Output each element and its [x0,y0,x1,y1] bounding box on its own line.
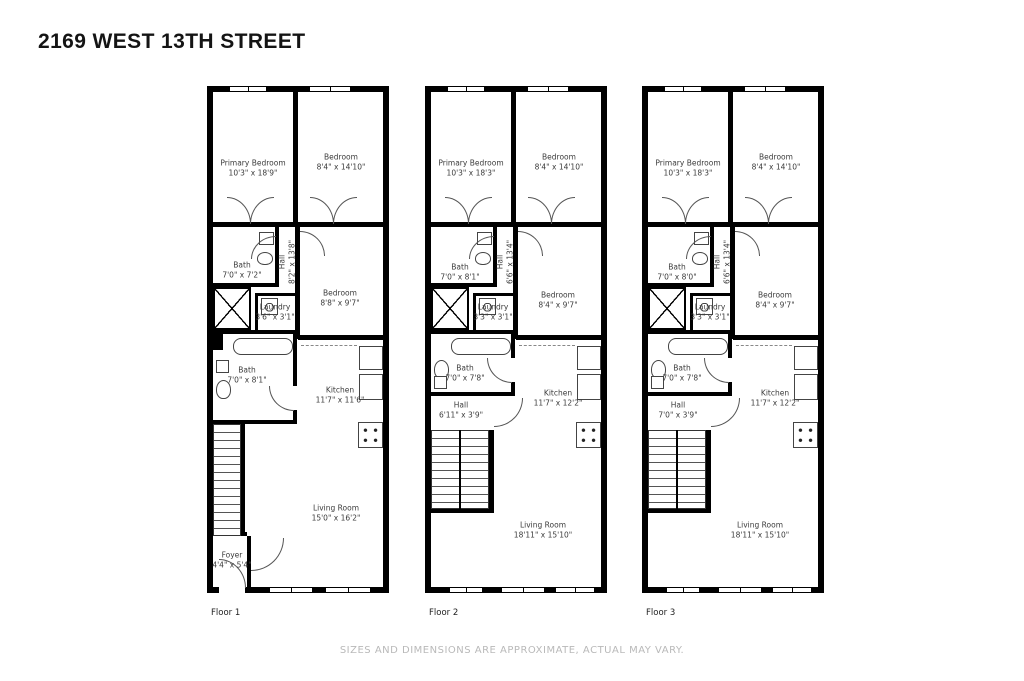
window-marker [527,86,569,92]
room-dims: 10'3" x 18'3" [438,168,503,178]
wall [431,509,494,513]
room-dims: 6'6" x 13'4" [722,240,732,284]
wall [255,293,299,296]
room-dims: 10'3" x 18'3" [655,168,720,178]
kitchen-sink-icon [794,346,818,370]
room-label-kitchen: Kitchen 11'7" x 11'6" [316,385,365,405]
room-name: Bath [440,262,479,272]
room-dims: 6'11" x 3'9" [439,410,483,420]
floorplan-page: 2169 WEST 13TH STREET [0,0,1024,681]
wall [648,392,732,396]
staircase [213,424,241,536]
room-label-hall-upper: Hall 6'6" x 13'4" [495,240,515,284]
room-dims: 8'4" x 14'10" [752,162,801,172]
disclaimer-text: SIZES AND DIMENSIONS ARE APPROXIMATE, AC… [0,645,1024,656]
shower-icon [648,287,686,330]
room-label-laundry: Laundry 3'3" x 3'1" [690,302,729,322]
window-marker [555,587,595,593]
room-name: Living Room [312,503,361,513]
room-name: Bedroom [755,290,794,300]
window-marker [718,587,762,593]
room-dims: 11'7" x 12'2" [534,398,583,408]
wall [728,92,733,225]
room-label-kitchen: Kitchen 11'7" x 12'2" [534,388,583,408]
floor-1-label: Floor 1 [211,608,240,618]
room-label-bedroom-top: Bedroom 8'4" x 14'10" [535,152,584,172]
room-dims: 3'3" x 3'1" [473,312,512,322]
floor-2-plan: Primary Bedroom 10'3" x 18'3" Bedroom 8'… [425,86,607,593]
room-label-bath-lower: Bath 7'0" x 7'8" [445,363,484,383]
room-name: Bath [222,260,261,270]
room-name: Hall [712,240,722,284]
room-label-bedroom-top: Bedroom 8'4" x 14'10" [317,152,366,172]
stove-icon [358,422,383,448]
cabinet-dash-line [519,345,575,346]
room-label-hall-upper: Hall 8'2" x 13'8" [277,240,297,284]
room-dims: 8'4" x 9'7" [538,300,577,310]
stair-divider [676,430,678,509]
kitchen-sink-icon [577,346,601,370]
room-name: Hall [439,400,483,410]
shower-icon [213,287,251,330]
room-dims: 10'3" x 18'9" [220,168,285,178]
room-dims: 7'0" x 7'8" [662,373,701,383]
wall [293,92,298,225]
wall [516,335,601,340]
cabinet-dash-line [736,345,792,346]
chimney-block [213,334,223,350]
room-label-hall-lower: Hall 7'0" x 3'9" [658,400,697,420]
window-marker [501,587,545,593]
wall [511,92,516,225]
room-name: Bath [445,363,484,373]
window-marker [666,587,700,593]
room-dims: 18'11" x 15'10" [514,530,572,540]
bathtub-icon [451,338,511,355]
window-marker [664,86,702,92]
room-name: Foyer [212,550,251,560]
room-name: Primary Bedroom [220,158,285,168]
room-label-primary-bedroom: Primary Bedroom 10'3" x 18'9" [220,158,285,178]
room-name: Bedroom [538,290,577,300]
room-dims: 8'4" x 14'10" [535,162,584,172]
room-label-bath-upper: Bath 7'0" x 8'1" [440,262,479,282]
room-dims: 6'6" x 13'4" [505,240,515,284]
room-label-living-room: Living Room 15'0" x 16'2" [312,503,361,523]
window-marker [744,86,786,92]
room-label-living-room: Living Room 18'11" x 15'10" [731,520,789,540]
room-dims: 7'0" x 7'2" [222,270,261,280]
wall [733,335,818,340]
room-name: Primary Bedroom [438,158,503,168]
room-name: Bath [662,363,701,373]
room-label-hall-upper: Hall 6'6" x 13'4" [712,240,732,284]
wall [473,293,517,296]
room-label-laundry: Laundry 3'3" x 3'1" [473,302,512,322]
wall [431,330,517,334]
room-label-foyer: Foyer 4'4" x 5'4" [212,550,251,570]
room-dims: 8'4" x 14'10" [317,162,366,172]
kitchen-sink-icon [359,346,383,370]
wall [431,392,515,396]
room-name: Bedroom [535,152,584,162]
floor-2-label: Floor 2 [429,608,458,618]
shower-icon [431,287,469,330]
room-dims: 7'0" x 3'9" [658,410,697,420]
room-label-living-room: Living Room 18'11" x 15'10" [514,520,572,540]
room-dims: 11'7" x 11'6" [316,395,365,405]
window-marker [772,587,812,593]
room-dims: 8'8" x 9'7" [320,298,359,308]
wall [690,293,734,296]
page-title: 2169 WEST 13TH STREET [38,30,305,54]
room-name: Hall [658,400,697,410]
cabinet-dash-line [301,345,357,346]
room-name: Bedroom [317,152,366,162]
room-dims: 3'6" x 3'1" [255,312,294,322]
window-marker [309,86,351,92]
room-dims: 18'11" x 15'10" [731,530,789,540]
room-label-bath-upper: Bath 7'0" x 7'2" [222,260,261,280]
bathtub-icon [668,338,728,355]
room-name: Kitchen [751,388,800,398]
room-name: Bath [227,365,266,375]
room-name: Hall [277,240,287,284]
room-label-bedroom-mid: Bedroom 8'4" x 9'7" [755,290,794,310]
room-label-bedroom-top: Bedroom 8'4" x 14'10" [752,152,801,172]
room-name: Kitchen [534,388,583,398]
room-name: Bath [657,262,696,272]
room-name: Laundry [255,302,294,312]
room-label-primary-bedroom: Primary Bedroom 10'3" x 18'3" [438,158,503,178]
room-name: Bedroom [752,152,801,162]
room-name: Laundry [473,302,512,312]
room-name: Hall [495,240,505,284]
room-label-bath-lower: Bath 7'0" x 8'1" [227,365,266,385]
stove-icon [793,422,818,448]
room-dims: 8'2" x 13'8" [287,240,297,284]
room-label-laundry: Laundry 3'6" x 3'1" [255,302,294,322]
room-dims: 7'0" x 7'8" [445,373,484,383]
wall [213,330,299,334]
window-marker [229,86,267,92]
room-dims: 7'0" x 8'1" [227,375,266,385]
window-marker [447,86,485,92]
wall [648,509,711,513]
window-marker [449,587,483,593]
wall [489,430,494,513]
stove-icon [576,422,601,448]
room-name: Primary Bedroom [655,158,720,168]
stair-divider [459,430,461,509]
room-label-primary-bedroom: Primary Bedroom 10'3" x 18'3" [655,158,720,178]
room-name: Living Room [731,520,789,530]
room-dims: 7'0" x 8'0" [657,272,696,282]
room-dims: 8'4" x 9'7" [755,300,794,310]
room-dims: 3'3" x 3'1" [690,312,729,322]
wall [706,430,711,513]
floor-3-label: Floor 3 [646,608,675,618]
room-label-bath-lower: Bath 7'0" x 7'8" [662,363,701,383]
window-marker [325,587,371,593]
wall [241,424,245,536]
room-label-kitchen: Kitchen 11'7" x 12'2" [751,388,800,408]
bathtub-icon [233,338,293,355]
wall [298,335,383,340]
room-dims: 15'0" x 16'2" [312,513,361,523]
room-name: Bedroom [320,288,359,298]
room-name: Laundry [690,302,729,312]
floor-3-plan: Primary Bedroom 10'3" x 18'3" Bedroom 8'… [642,86,824,593]
floor-1-plan: Primary Bedroom 10'3" x 18'9" Bedroom 8'… [207,86,389,593]
room-dims: 7'0" x 8'1" [440,272,479,282]
room-label-bath-upper: Bath 7'0" x 8'0" [657,262,696,282]
window-marker [269,587,313,593]
room-label-bedroom-mid: Bedroom 8'4" x 9'7" [538,290,577,310]
room-name: Kitchen [316,385,365,395]
room-name: Living Room [514,520,572,530]
room-label-bedroom-mid: Bedroom 8'8" x 9'7" [320,288,359,308]
wall [648,330,734,334]
room-dims: 11'7" x 12'2" [751,398,800,408]
room-dims: 4'4" x 5'4" [212,560,251,570]
room-label-hall-lower: Hall 6'11" x 3'9" [439,400,483,420]
